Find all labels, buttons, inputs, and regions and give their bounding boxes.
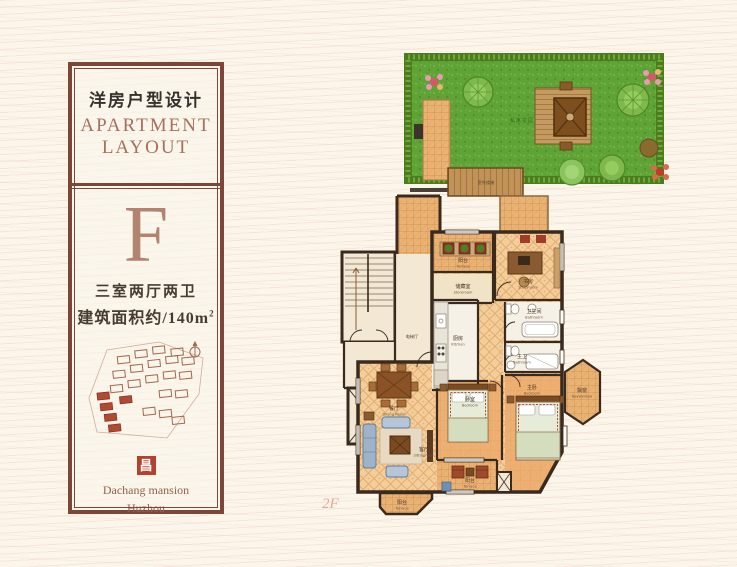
terrace-top-plants: [440, 242, 490, 256]
duct-shaft: [497, 472, 511, 492]
living-label-zh: 客厅: [419, 446, 429, 453]
kitchen-label-zh: 厨房: [453, 335, 463, 342]
study-label-zh: 书房: [523, 278, 533, 285]
floor-label: 2F: [322, 496, 340, 512]
storeroom-label-en: Storeroom: [454, 291, 473, 295]
title-zh: 洋房户型设计: [72, 86, 220, 111]
terrace-bottom-label-zh: 阳台: [465, 477, 475, 484]
bath1-label-zh: 卫生间: [526, 308, 541, 315]
info-panel: 洋房户型设计 APARTMENT LAYOUT F 三室两厅两卫 建筑面积约/1…: [68, 62, 224, 514]
living-label-en: Sittingroom: [414, 454, 435, 458]
bay-label-zh: 飘窗: [577, 387, 587, 394]
bedroom-label-en: Bedroom: [462, 404, 479, 408]
deck-label: 室外楼梯: [478, 179, 495, 186]
elevator-hall-label: 电梯厅: [406, 333, 419, 340]
garden-gate: [414, 124, 423, 139]
terrace-top-label-zh: 阳台: [458, 257, 468, 264]
bay-label-en: Baywindow: [572, 395, 592, 399]
panel-header: 洋房户型设计 APARTMENT LAYOUT: [72, 86, 220, 186]
garden: 私家花园: [408, 57, 669, 185]
master-label-en: Bedroom: [524, 392, 541, 396]
title-en-line1: APARTMENT: [72, 115, 220, 137]
kitchen-label-en: Kitchen: [451, 343, 465, 347]
entry-terrace: [500, 196, 548, 232]
storeroom-label-zh: 储藏室: [455, 283, 470, 290]
garden-pavilion: [535, 82, 591, 150]
bath2-label-en: Bathroom: [513, 361, 531, 365]
master-label-zh: 主卧: [527, 384, 537, 391]
bath2-label-zh: 主卫: [517, 353, 527, 360]
balcony-label-zh: 阳台: [397, 499, 407, 506]
terrace-top-label-en: Terrace: [455, 265, 470, 269]
terrace-bottom-label-en: Terrace: [462, 485, 477, 489]
title-en-line2: LAYOUT: [72, 137, 220, 159]
garden-label: 私家花园: [510, 117, 534, 124]
bedroom-label-zh: 卧室: [465, 396, 475, 403]
dining-label-en: Dining Room: [383, 413, 406, 417]
garden-shrub: [640, 139, 658, 157]
title-en: APARTMENT LAYOUT: [72, 115, 220, 159]
balcony-label-en: Terrace: [394, 507, 409, 511]
garden-path: [423, 100, 450, 180]
bath1-label-en: Bathroom: [525, 316, 543, 320]
study-label-en: Studyroom: [518, 286, 538, 290]
bedroom-bed: [440, 384, 496, 442]
kitchen-fixtures: [434, 302, 448, 388]
floor-plan: 私家花园 室外楼梯 电梯厅: [320, 50, 690, 530]
dining-label-zh: 餐厅: [389, 405, 399, 412]
stairwell: [342, 252, 395, 342]
